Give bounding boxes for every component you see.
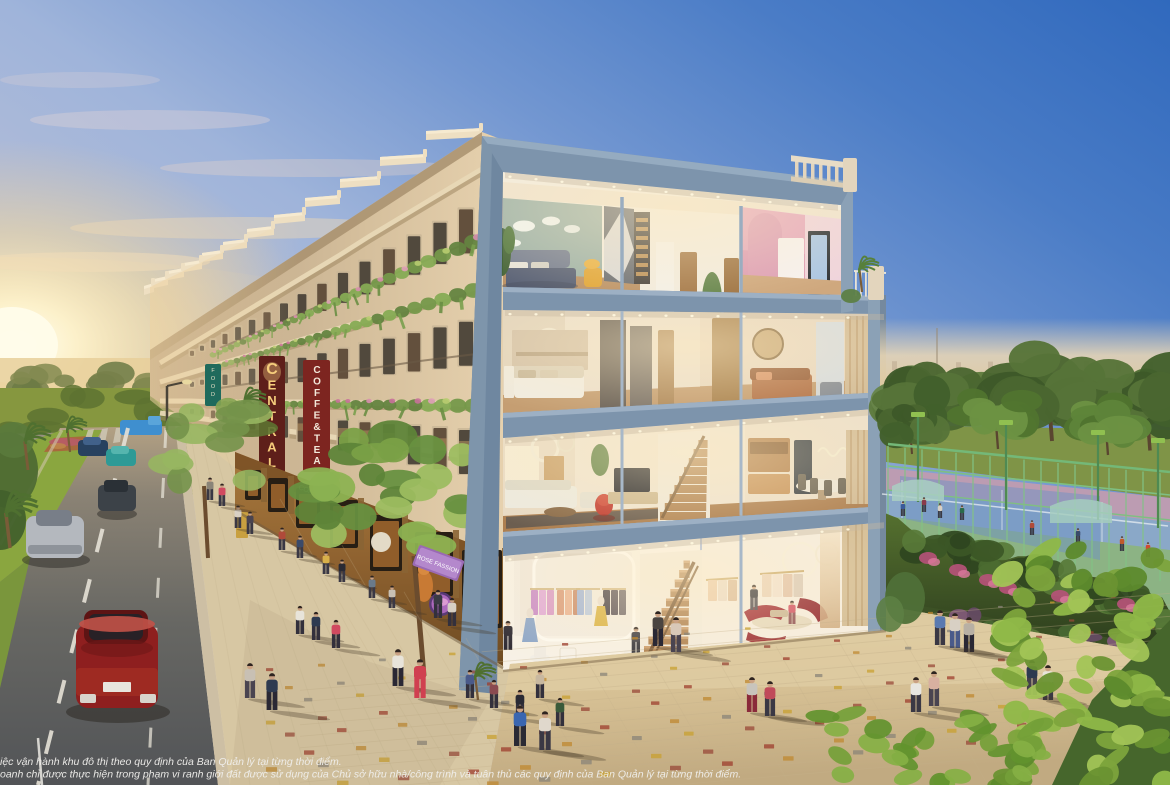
svg-text:A: A	[267, 440, 277, 455]
svg-text:N: N	[267, 393, 276, 408]
svg-text:oanh chỉ được thực hiện trong: oanh chỉ được thực hiện trong phạm vi ra…	[0, 769, 741, 781]
svg-text:O: O	[211, 384, 216, 390]
svg-text:E: E	[314, 411, 321, 422]
svg-text:iệc vận hành khu đô thị theo q: iệc vận hành khu đô thị theo quy định củ…	[0, 756, 342, 768]
svg-text:C: C	[313, 365, 320, 376]
svg-text:F: F	[314, 399, 320, 410]
svg-text:T: T	[314, 433, 320, 444]
svg-text:&: &	[313, 422, 320, 433]
svg-text:A: A	[313, 456, 320, 467]
svg-text:O: O	[211, 376, 216, 382]
svg-text:O: O	[313, 376, 321, 387]
svg-text:F: F	[314, 388, 320, 399]
svg-text:E: E	[268, 378, 277, 393]
svg-text:D: D	[211, 392, 215, 398]
svg-text:C: C	[266, 361, 278, 378]
svg-text:E: E	[314, 445, 321, 456]
